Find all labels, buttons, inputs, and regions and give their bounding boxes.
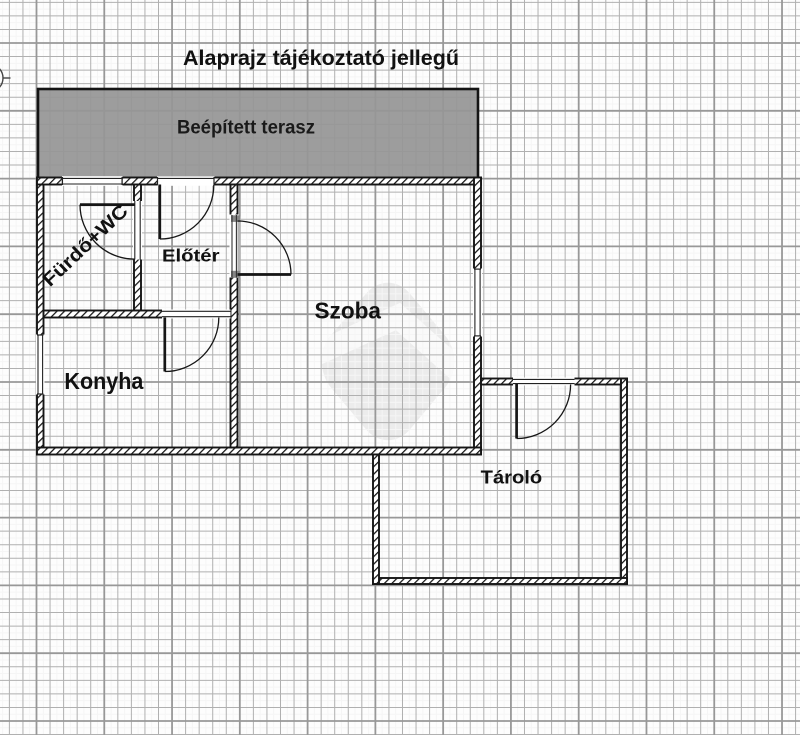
svg-text:Beépített terasz: Beépített terasz [177, 118, 315, 139]
svg-text:Előtér: Előtér [162, 246, 220, 266]
svg-text:Konyha: Konyha [64, 368, 144, 394]
svg-text:Szoba: Szoba [315, 298, 382, 324]
svg-text:Alaprajz tájékoztató jellegű: Alaprajz tájékoztató jellegű [183, 47, 459, 70]
svg-text:Tároló: Tároló [481, 467, 543, 488]
